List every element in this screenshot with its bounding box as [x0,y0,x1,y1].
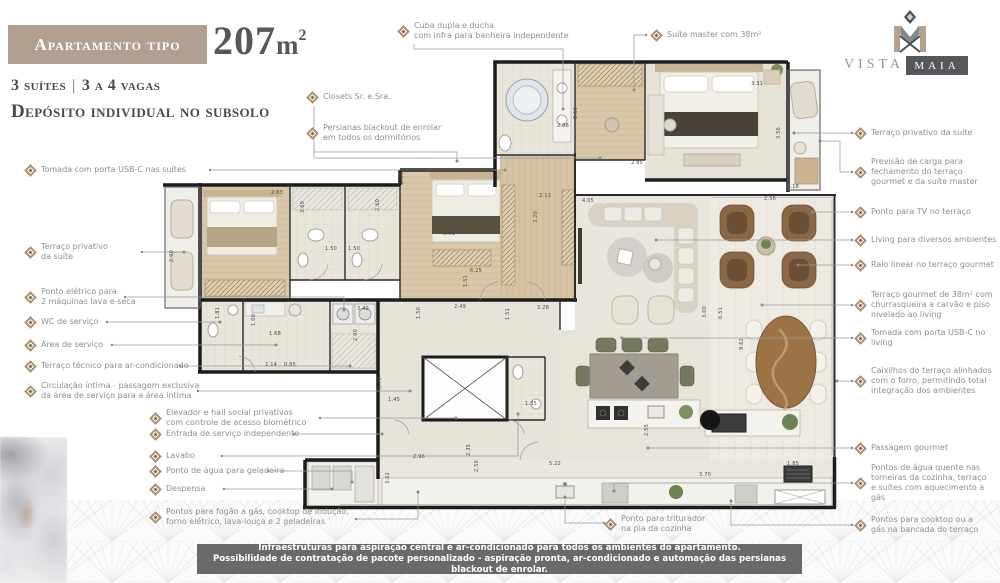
callout-tomada-usb-suites: Tomada com porta USB-C nas suítes [26,165,186,175]
dimension-label: 5.22 [549,461,561,467]
dimension-label: 3.42 [357,306,369,312]
callout-terraco-privativo-left: Terraço privativo da suíte [26,242,108,262]
callout-suite-master: Suíte master com 38m² [652,30,762,40]
brand-monogram-icon [892,10,928,54]
dimension-label: 3.20 [533,211,539,223]
dimension-label: 1.00 [251,314,257,326]
callout-terraco-tecnico: Terraço técnico para ar-condicionado [26,361,189,371]
diamond-icon [24,360,37,373]
diamond-icon [306,91,319,104]
callout-agua-quente: Pontos de água quente nas torneiras da c… [856,463,1000,503]
callout-elevador-hall: Elevador e hall social privativos com co… [151,408,306,428]
diamond-icon [24,385,37,398]
diamond-icon [306,127,319,140]
floor-plan-poster: 2.862.502.853.313.561.182.562.633.602.60… [0,0,1000,583]
diamond-icon [854,127,867,140]
dimension-label: 3.28 [537,305,549,311]
callout-cooktop-bancada: Pontos para cooktop ou a gás na bancada … [856,515,978,535]
callout-ponto-eletrico: Ponto elétrico para 2 máquinas lava e se… [26,287,136,307]
diamond-icon [854,375,867,388]
diamond-icon [149,465,162,478]
callout-circulacao-intima: Circulação íntima - passagem exclusiva d… [26,381,199,401]
dimension-label: 2.00 [353,329,359,341]
apartment-deposito: Depósito individual no subsolo [11,101,270,123]
diamond-icon [854,442,867,455]
dimension-label: 3.31 [751,81,763,87]
dimension-label: 1.85 [787,461,799,467]
callout-tomada-usb-living: Tomada com porta USB-C no living [856,328,1000,348]
diamond-icon [854,299,867,312]
callout-previsao-carga: Previsão de carga para fechamento do ter… [856,157,978,187]
dimension-label: 1.18 [787,184,799,190]
dimension-label: 3.62 [385,472,391,484]
diamond-icon [24,339,37,352]
dimension-label: 2.60 [375,199,381,211]
footer-info-bar: Infraestruturas para aspiração central e… [197,544,802,574]
dimension-label: 1.35 [525,401,537,407]
dimension-label: 1.68 [269,331,281,337]
dimension-label: 1.81 [215,307,221,319]
diamond-icon [854,234,867,247]
brand-word-maia: MAIA [906,56,968,75]
callout-entrada-servico: Entrada de serviço independente [151,429,299,439]
elevator-shaft [423,357,507,420]
dimension-label: 3.56 [776,127,782,139]
callout-closets: Closets Sr. e Sra. [308,92,391,102]
callout-caixilhos: Caixilhos do terraço alinhados com o for… [856,366,992,396]
dimension-label: 2.50 [573,107,579,119]
callout-terraco-privativo-right: Terraço privativo da suíte [856,128,972,138]
diamond-icon [24,246,37,259]
area-number: 207 [213,18,276,63]
dimension-label: 5.79 [377,377,383,389]
brand-word-vista: VISTA [843,57,905,73]
diamond-icon [854,206,867,219]
callout-lavabo: Lavabo [151,451,195,461]
apartment-type-badge: Apartamento tipo [8,25,207,64]
dimension-label: 3.00 [702,306,708,318]
dimension-label: 2.14 [265,362,277,368]
callout-cuba-dupla: Cuba dupla e ducha com infra para banhei… [399,21,569,41]
callout-ralo-linear: Ralo linear no terraço gourmet [856,260,994,270]
apartment-area: 207m2 [213,21,307,61]
dimension-label: 3.60 [300,201,306,213]
dimension-label: 1.51 [463,275,469,287]
callout-wc-servico: WC de serviço [26,317,98,327]
diamond-icon [854,519,867,532]
dimension-label: 2.86 [557,123,569,129]
diamond-icon [149,483,162,496]
dimension-label: 6.51 [718,307,724,319]
diamond-icon [149,450,162,463]
dimension-label: 2.63 [271,190,283,196]
dimension-label: 2.85 [631,160,643,166]
dimension-label: 1.50 [348,246,360,252]
apartment-specs: 3 suítes|3 a 4 vagas [11,77,160,95]
callout-ponto-tv: Ponto para TV no terraço [856,207,971,217]
diamond-icon [854,166,867,179]
dimension-label: 1.50 [416,307,422,319]
dimension-label: 1.51 [505,308,511,320]
area-superscript: 2 [299,27,307,44]
callout-area-servico: Área de serviço [26,340,103,350]
callout-living-ambientes: Living para diversos ambientes [856,235,996,245]
spec-vagas: 3 a 4 vagas [82,77,161,94]
dimension-label: 4.05 [582,198,594,204]
diamond-icon [854,259,867,272]
dimension-label: 2.56 [764,196,776,202]
diamond-icon [149,428,162,441]
dimension-label: 3.91 [443,231,455,237]
callout-passagem-gourmet: Passagem gourmet [856,443,948,453]
spec-separator: | [66,77,82,94]
dimension-label: 2.13 [539,193,551,199]
dimension-label: 1.50 [325,246,337,252]
dimension-label: 2.50 [474,460,480,472]
dimension-label: 2.35 [466,444,472,456]
diamond-icon [24,164,37,177]
diamond-icon [149,412,162,425]
dimension-label: 2.95 [399,172,405,184]
diamond-icon [149,511,162,524]
diamond-icon [854,332,867,345]
footer-line1: Infraestruturas para aspiração central e… [258,543,740,554]
footer-line2: Possibilidade de contratação de pacote p… [197,554,802,576]
dimension-label: 1.45 [388,397,400,403]
spec-suites: 3 suítes [11,77,66,94]
dimension-label: 6.25 [470,268,482,274]
diamond-icon [854,477,867,490]
callout-triturador: Ponto para triturador na pia da cozinha [606,514,705,534]
callout-despensa: Despensa [151,484,205,494]
area-unit: m [276,30,299,60]
diamond-icon [24,291,37,304]
dimension-label: 2.55 [644,424,650,436]
brand-logo: VISTA MAIA [840,10,975,78]
diamond-icon [604,518,617,531]
dimension-label: 0.85 [284,362,296,368]
callout-persianas: Persianas blackout de enrolar em todos o… [308,123,441,143]
callout-pontos-fogao: Pontos para fogão a gás, cooktop de indu… [151,507,349,527]
callout-terraco-gourmet: Terraço gourmet de 38m² com churrasqueir… [856,290,993,320]
diamond-icon [24,316,37,329]
diamond-icon [397,25,410,38]
dimension-label: 2.90 [169,250,175,262]
dimension-label: 9.62 [739,338,745,350]
dimension-label: 2.96 [413,454,425,460]
dimension-label: 2.49 [454,304,466,310]
callout-agua-geladeira: Ponto de água para geladeira [151,466,284,476]
diamond-icon [650,29,663,42]
dimension-label: 3.70 [699,472,711,478]
